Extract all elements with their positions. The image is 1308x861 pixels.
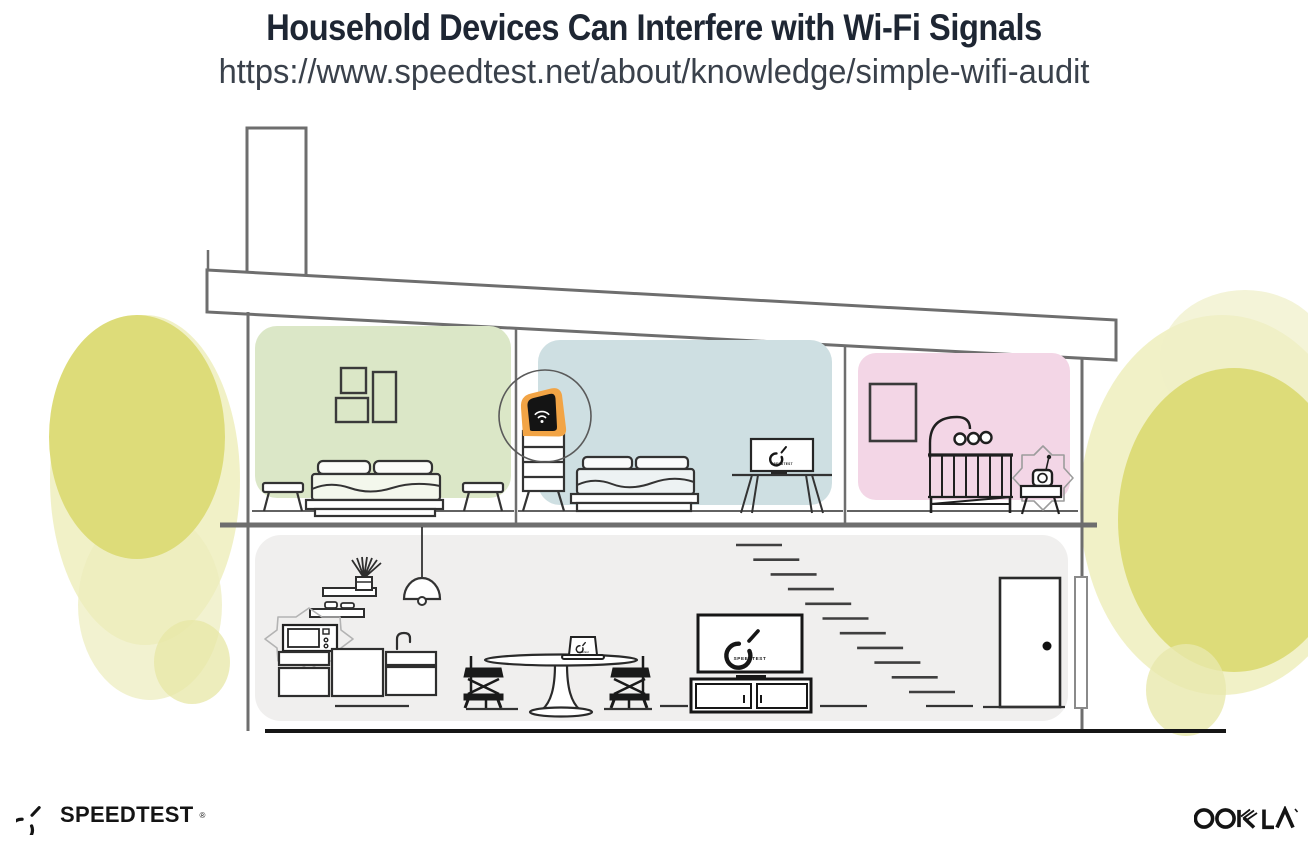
plant-pot	[356, 577, 372, 590]
infographic-page: Household Devices Can Interfere with Wi-…	[0, 0, 1308, 861]
chair-seat	[610, 694, 649, 700]
table-base	[530, 708, 592, 717]
bedroom-tv-screen-label: SPEEDTEST	[771, 462, 793, 466]
pillow	[583, 457, 632, 469]
tree-left-blob	[154, 620, 230, 704]
console-door	[757, 684, 807, 708]
chair-seat	[464, 694, 503, 700]
room-bedroom-blue: SPEEDTEST	[499, 340, 832, 513]
stool-top	[263, 483, 303, 492]
laptop-screen-label: SPEEDTEST	[577, 652, 590, 654]
house-cross-section-illustration: SPEEDTEST	[0, 0, 1308, 861]
room-nursery-pink	[858, 353, 1073, 514]
router-body	[527, 394, 557, 431]
cabinet-door	[279, 668, 329, 696]
front-door	[1000, 578, 1060, 707]
door-knob	[1043, 642, 1052, 651]
monitor-lens	[1038, 474, 1047, 483]
bedroom-tv	[751, 439, 813, 471]
speedtest-logo: SPEEDTEST®	[16, 795, 205, 835]
cabinet-drawer	[279, 652, 329, 665]
bowl	[325, 602, 337, 608]
microwave-knob	[324, 644, 328, 648]
microwave-knob	[324, 638, 328, 642]
microwave-button	[323, 629, 329, 634]
pillow	[636, 457, 688, 469]
microwave	[283, 625, 337, 651]
stool-top	[463, 483, 503, 492]
bed-green	[306, 461, 443, 516]
tree-left	[49, 315, 240, 704]
shelf-leg	[523, 491, 529, 511]
bed-platform	[571, 494, 698, 503]
pillow	[318, 461, 370, 474]
ookla-wordmark	[1194, 806, 1300, 831]
mobile-ball	[968, 433, 979, 444]
speedtest-wordmark: SPEEDTEST	[60, 802, 194, 828]
bowl	[341, 603, 354, 608]
bed-base	[315, 509, 435, 516]
main-floor: SPEEDTEST SPEE	[255, 527, 1068, 721]
microwave-window	[288, 629, 319, 647]
room-bedroom-green	[255, 326, 511, 516]
downspout-pipe	[1075, 577, 1087, 708]
bed-base	[577, 503, 691, 511]
laptop-base	[562, 655, 604, 659]
mattress	[312, 474, 440, 500]
door-panel	[1000, 578, 1060, 707]
console-door	[696, 684, 751, 708]
wifi-dot	[541, 420, 544, 423]
chair-top-slat	[464, 668, 503, 677]
pillow	[374, 461, 432, 474]
bed-platform	[306, 500, 443, 509]
mobile-ball	[955, 434, 966, 445]
cabinet-door	[386, 667, 436, 695]
cabinet-drawer	[386, 652, 436, 665]
registered-mark: ®	[200, 811, 206, 820]
tree-left-core	[49, 315, 225, 559]
chimney	[247, 128, 306, 280]
table-top	[485, 655, 637, 666]
media-console	[691, 679, 811, 712]
antenna-tip	[1047, 455, 1051, 459]
wifi-router	[527, 394, 557, 431]
living-tv-area: SPEEDTEST	[691, 615, 811, 712]
ookla-logo	[1194, 806, 1300, 831]
lamp-bulb	[418, 597, 426, 605]
mobile-ball	[981, 432, 992, 443]
tree-right-blob	[1146, 644, 1226, 736]
shelf-lower	[310, 609, 364, 617]
living-tv-screen-label: SPEEDTEST	[734, 656, 767, 661]
cabinet-door	[332, 649, 383, 696]
chair-top-slat	[611, 668, 650, 677]
speedtest-gauge-logo-icon	[16, 795, 54, 835]
table-top	[1021, 486, 1061, 497]
